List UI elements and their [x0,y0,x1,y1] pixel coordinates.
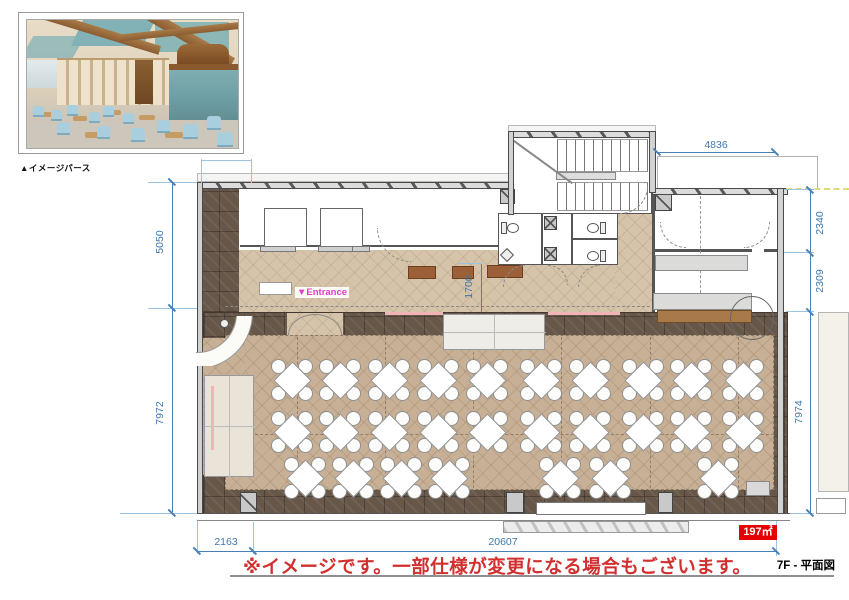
dimension-line-bottom [197,551,776,552]
render-chair [57,122,70,135]
entrance-sign-board [259,282,292,295]
center-service-counter [443,314,545,350]
side-cabinet [746,481,770,496]
dimension-right-upper: 2340 [814,200,826,246]
dimension-left-upper: 5050 [154,219,166,265]
render-ceiling-panel [26,36,85,58]
storage-shelf [655,255,748,271]
bench-accent [211,386,214,450]
layout-grid-line [650,337,651,488]
right-room-divider [652,249,752,252]
render-chair [51,110,62,121]
dim-ext [251,159,252,183]
render-chair [89,112,100,123]
toilet-tank [600,222,606,234]
render-wood-door [135,60,153,104]
render-chair [67,105,78,116]
dimension-right-mid: 2309 [814,258,826,304]
wall-top-stair [508,131,656,138]
table-divider-line [229,376,230,478]
dimension-line-right [810,190,811,514]
entrance-label: ▼Entrance [295,287,349,298]
dimension-bottom-left: 2163 [195,536,257,548]
wall-stair-left [508,131,514,215]
elevator-door-sill [260,246,296,252]
dining-parquet-floor [225,335,774,490]
dimension-bottom-main: 20607 [443,536,563,548]
elevator-1 [264,208,307,247]
duct-shaft [655,194,672,211]
duct-shaft [544,247,557,261]
toilet-tank [600,250,606,262]
dimension-line-left [172,182,173,512]
dim-ext [201,159,202,183]
render-bar-counter [169,64,238,120]
wall-stair-right [649,131,656,193]
adjacent-building [818,312,849,492]
elevator-2 [320,208,363,247]
render-chair [33,106,44,117]
render-chair [217,132,233,147]
column [506,492,524,513]
render-table [139,115,155,120]
render-chair [97,126,110,139]
wall-top-left [197,182,513,189]
terrace-paving [503,521,689,533]
layout-grid-line [473,337,474,488]
door-sill [352,246,370,252]
counter-divider-line [494,315,495,351]
render-chair [157,120,170,133]
toilet-bowl [587,251,599,261]
layout-grid-line [561,337,562,488]
render-table [73,116,87,121]
wall-top-right [652,188,788,195]
render-bar-hood [177,44,229,64]
toilet-bowl [507,223,519,233]
sheet-title: 7F - 平面図 [735,557,835,573]
restroom-wall [572,238,617,240]
reception-counter-clip [196,316,268,366]
column [658,492,673,513]
entrance-tile-pillar [199,183,239,312]
restroom-wall [541,214,543,264]
area-badge: 197㎡ [739,525,777,540]
layout-grid-line [225,434,774,435]
dimension-right-main: 7974 [793,389,805,435]
toilet-bowl [587,223,599,233]
render-chair [131,128,145,142]
corridor-parquet [615,213,655,312]
dimension-left-lower: 7972 [154,390,166,436]
dimension-entrance: 1700 [463,264,475,310]
elevator-door-sill [318,246,354,252]
render-window [27,60,57,88]
entrance-mat [408,266,436,279]
wall-right [777,188,784,518]
counter-divider-line [444,332,546,333]
upper-floor-outline [657,156,818,188]
layout-grid-line [297,337,298,488]
side-service-table [204,375,254,477]
footer-divider [230,575,834,577]
inset-caption: ▲イメージパース [20,162,91,174]
column [240,492,257,513]
exterior-block [816,498,846,514]
duct-shaft [544,216,557,230]
layout-grid-line [385,337,386,488]
render-chair [103,106,114,117]
column-circle [730,296,774,340]
wall-accent-strip [548,312,620,315]
exterior-ledge [197,173,513,182]
dimension-top: 4836 [657,139,775,151]
floor-plan-sheet: ▲イメージパース ▼Entrance [0,0,849,600]
render-chair [207,116,221,130]
fire-shutter-line [225,306,655,307]
stair-flight-upper [557,139,648,172]
reception-stool [220,319,229,328]
dimension-line-top [657,152,775,153]
dim-ext [120,513,197,514]
window-band [197,513,790,521]
room-center-dashed [700,196,701,308]
dim-ext [201,160,252,161]
concept-render-image [26,19,239,149]
render-chair [123,113,134,124]
layout-grid-line [738,337,739,488]
render-bar-top [169,64,238,70]
concept-render-frame [18,12,244,154]
wall-accent-strip [385,312,443,315]
window-bench [536,502,646,515]
render-chair [183,124,198,139]
dimension-line-entrance [481,263,482,312]
